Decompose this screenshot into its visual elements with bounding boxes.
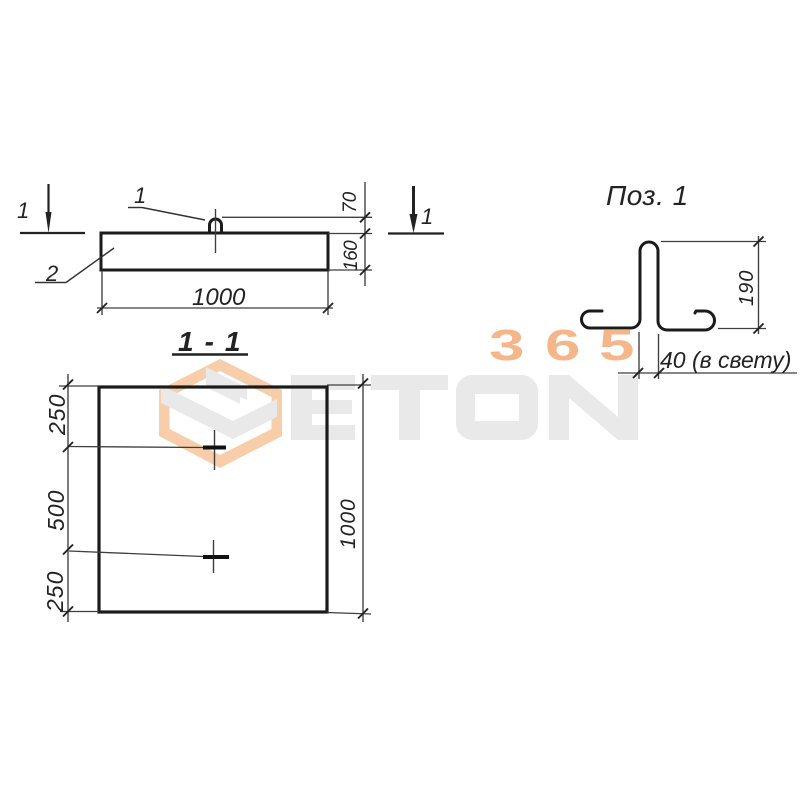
svg-text:160: 160 xyxy=(341,240,362,271)
svg-text:1: 1 xyxy=(134,183,146,208)
svg-text:190: 190 xyxy=(736,270,758,306)
svg-text:1000: 1000 xyxy=(192,284,246,311)
svg-text:1-1: 1-1 xyxy=(178,326,251,357)
svg-text:1: 1 xyxy=(421,204,433,229)
svg-text:250: 250 xyxy=(44,394,70,436)
svg-text:6: 6 xyxy=(545,320,580,370)
svg-text:3: 3 xyxy=(489,320,524,370)
svg-text:Поз. 1: Поз. 1 xyxy=(606,180,689,211)
svg-text:40 (в свету): 40 (в свету) xyxy=(660,347,791,373)
svg-text:250: 250 xyxy=(42,571,68,613)
svg-text:1: 1 xyxy=(17,198,29,223)
svg-text:500: 500 xyxy=(43,490,69,531)
svg-text:70: 70 xyxy=(340,191,361,213)
svg-text:1000: 1000 xyxy=(337,498,360,549)
